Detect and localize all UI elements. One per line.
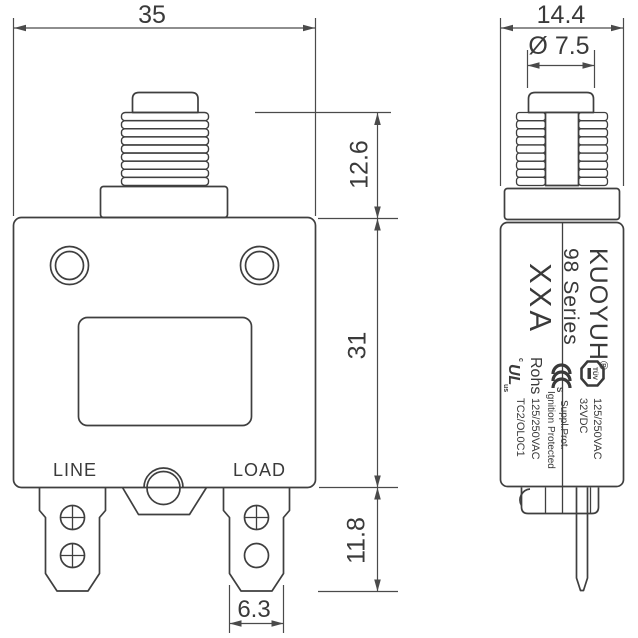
- svg-text:UL: UL: [505, 364, 522, 385]
- svg-text:us: us: [503, 384, 509, 392]
- rohs-mark: Rohs: [527, 357, 543, 394]
- front-label-window: [79, 318, 252, 426]
- terminal-label-line: LINE: [53, 461, 97, 479]
- ccc-icon: S: [549, 359, 574, 395]
- side-terminal-blade: [577, 488, 588, 591]
- rating-primary-line1: 125/250VAC: [590, 398, 604, 460]
- front-rivets: [51, 247, 279, 285]
- svg-text:c: c: [517, 358, 524, 362]
- side-thread-key: [546, 113, 579, 186]
- model-rating: XXA: [525, 263, 556, 334]
- front-bezel: [101, 187, 228, 218]
- ignition-protected: Ignition Protected: [545, 391, 555, 469]
- side-button-cap: [529, 93, 594, 113]
- rating-primary: 125/250VAC 32VDC: [576, 398, 604, 460]
- front-terminal-load: [224, 488, 290, 592]
- brand-text: KUOYUH: [584, 248, 612, 361]
- approval-code: TC2/OL0C1: [514, 398, 525, 457]
- front-terminal-line: [40, 488, 106, 592]
- svg-text:TÜV: TÜV: [591, 367, 600, 381]
- dim-bushing-height: 12.6: [348, 135, 373, 195]
- rating-primary-line2: 32VDC: [576, 398, 590, 460]
- rating-secondary: 125/250VAC: [529, 398, 540, 460]
- tuv-icon: TÜV: [580, 360, 605, 387]
- terminal-label-load: LOAD: [233, 461, 286, 479]
- dim-body-height: 31: [346, 316, 371, 376]
- front-mounting-tab: [123, 468, 207, 515]
- brand-name: KUOYUH®: [585, 248, 610, 371]
- front-button-cap: [133, 93, 199, 113]
- svg-text:S: S: [555, 387, 564, 393]
- product-label: KUOYUH® 98 Series XXA TÜV 125/250VAC 32V…: [502, 223, 622, 485]
- dim-front-width: 35: [112, 3, 192, 28]
- dim-terminal-width: 6.3: [214, 598, 294, 622]
- ul-icon: c UL us: [503, 358, 528, 395]
- front-body: [14, 218, 316, 488]
- technical-drawing-canvas: 35 14.4 Ø 7.5 12.6 31 11.8 6.3 LINE LOAD…: [0, 0, 638, 638]
- dim-terminal-height: 11.8: [345, 511, 370, 571]
- dim-button-diameter: Ø 7.5: [519, 34, 599, 59]
- dim-side-depth: 14.4: [521, 3, 601, 28]
- series-name: 98 Series: [560, 248, 581, 346]
- side-bezel: [505, 189, 620, 220]
- front-view: [14, 93, 316, 592]
- suppl-prot: Suppl.Prot.: [558, 400, 568, 449]
- front-thread-ribs: [122, 113, 209, 186]
